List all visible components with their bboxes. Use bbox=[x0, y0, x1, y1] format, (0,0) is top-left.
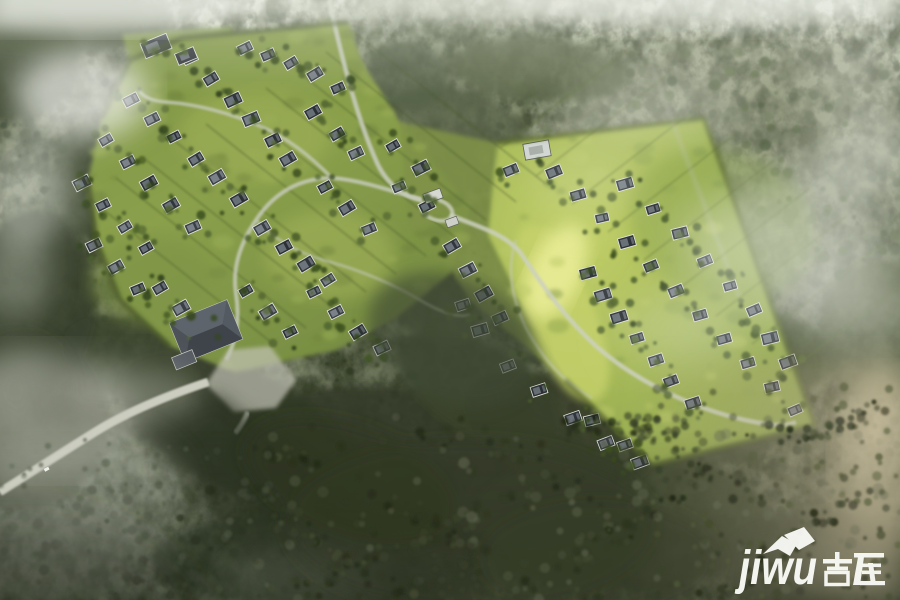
svg-text:jiwu: jiwu bbox=[734, 542, 817, 595]
